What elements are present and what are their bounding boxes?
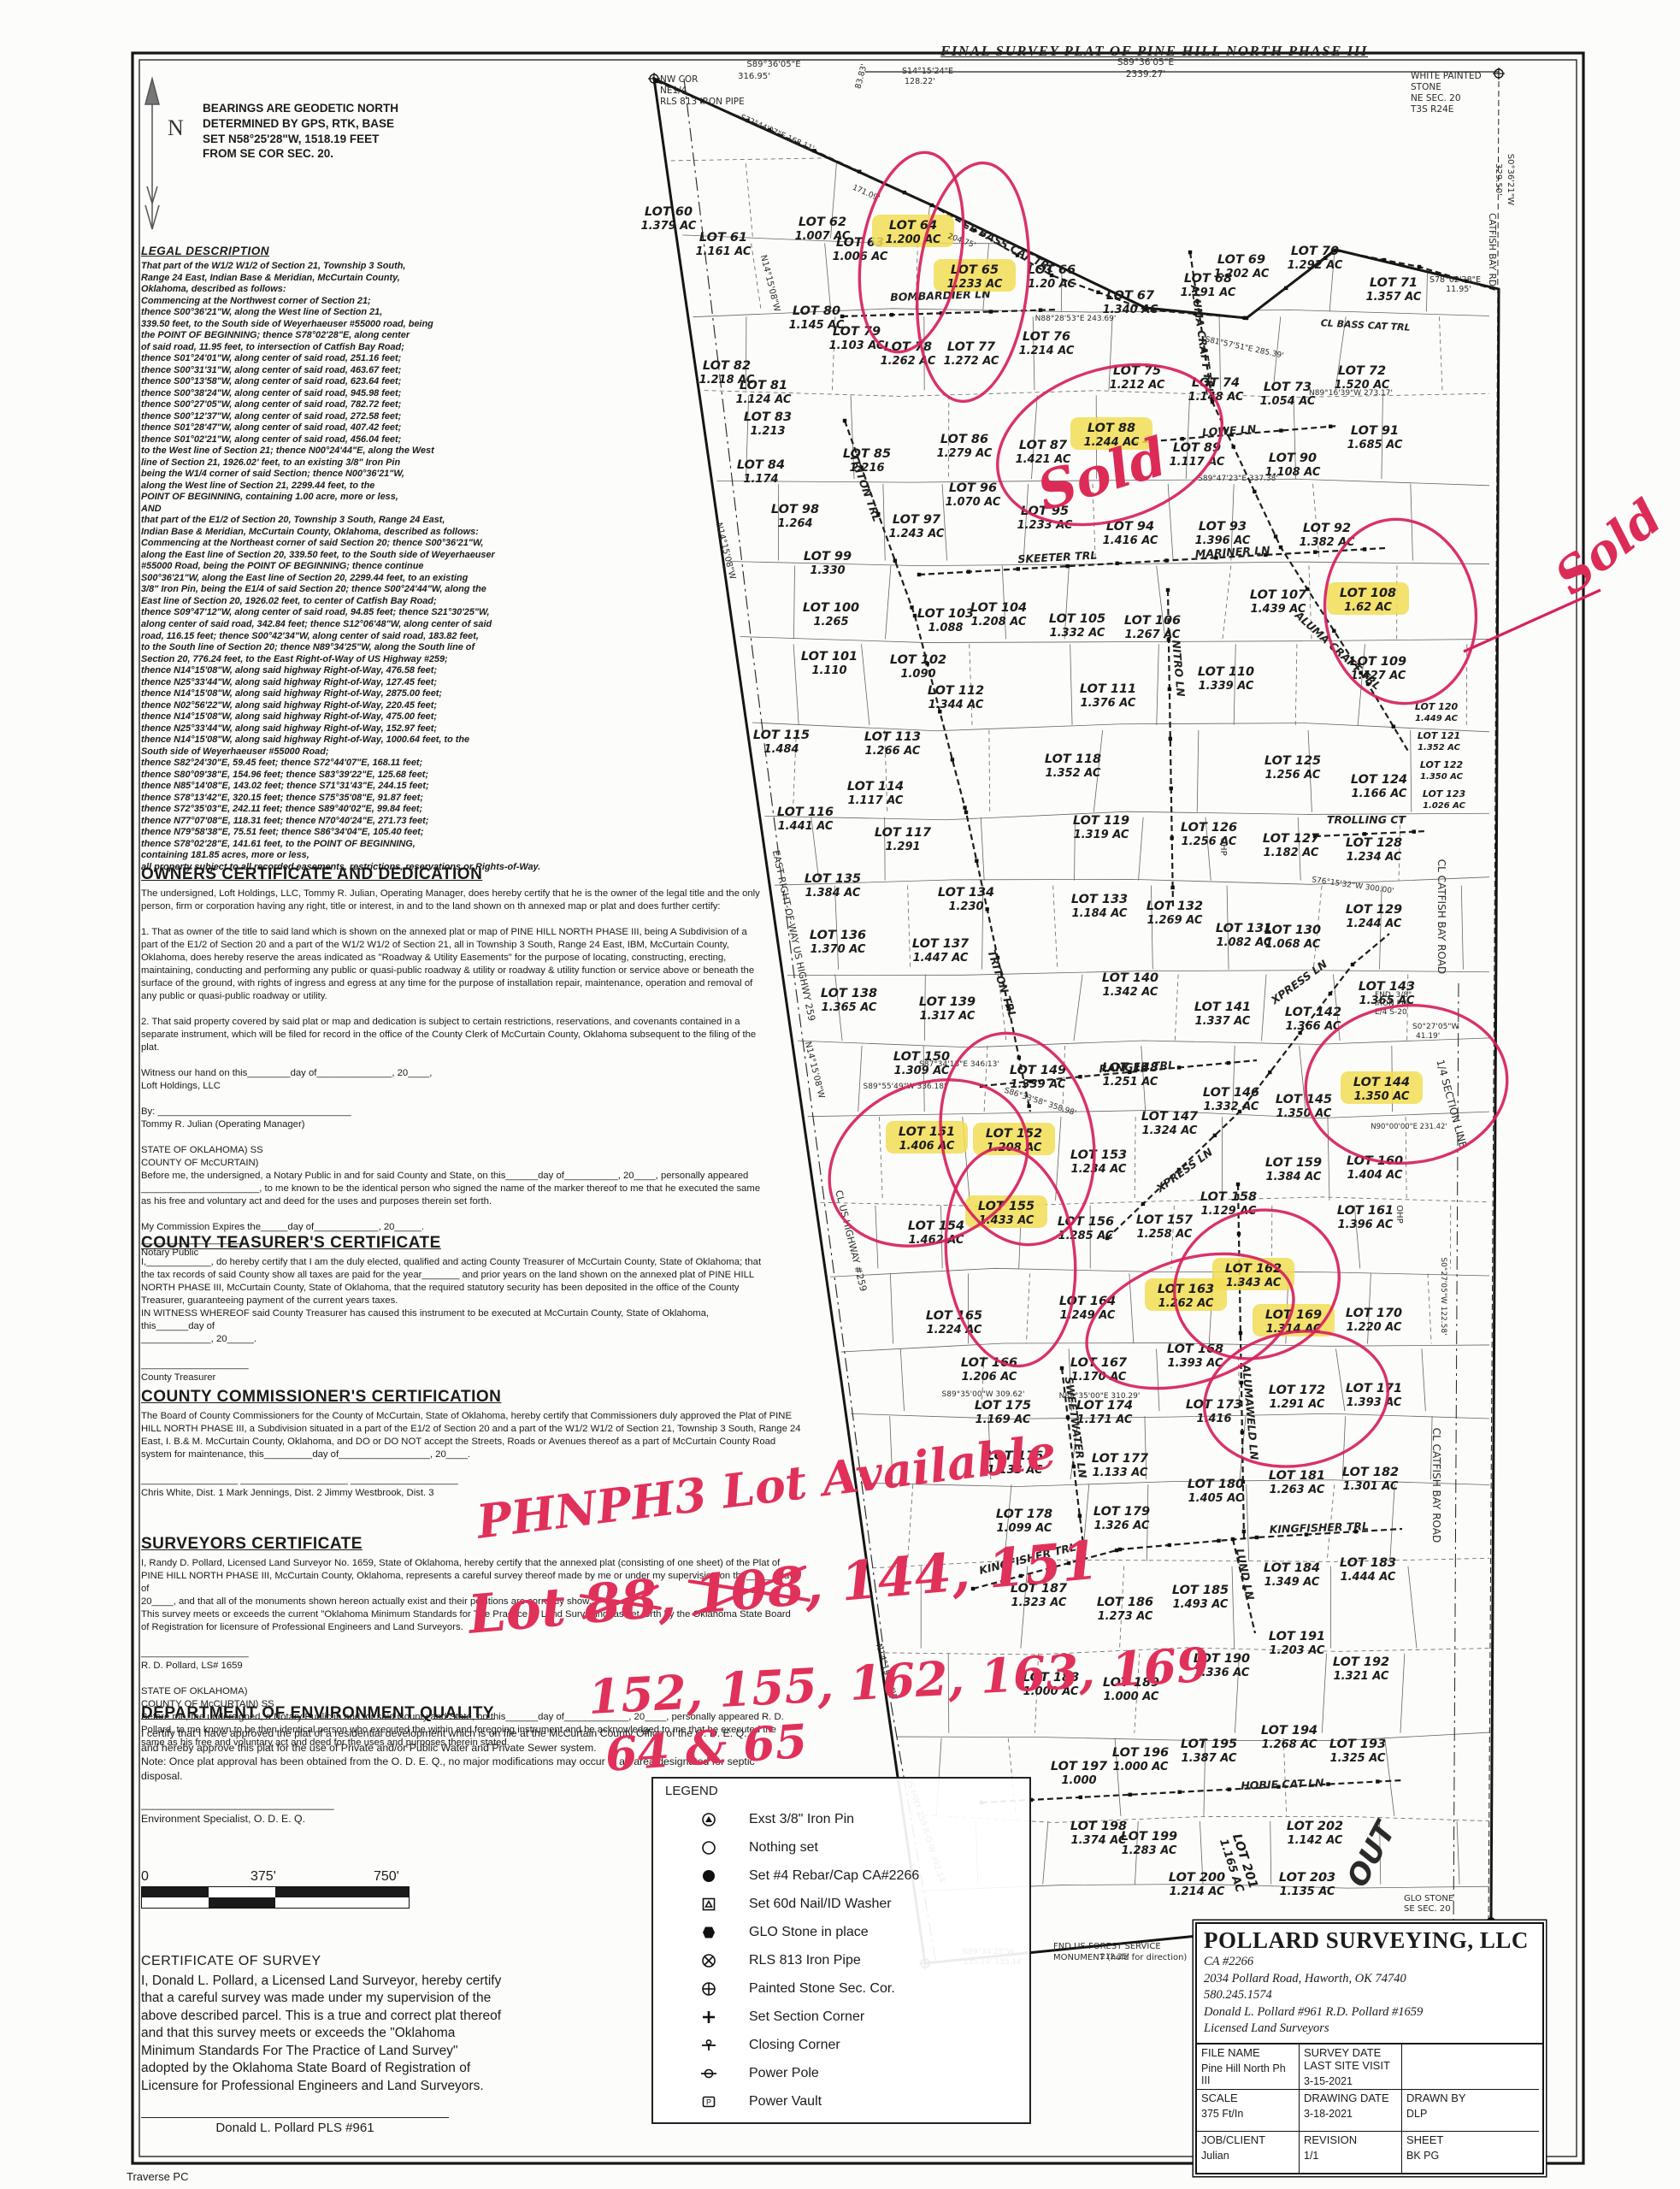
map-graphic: LOT 122 bbox=[1420, 759, 1464, 770]
map-annotation: CL CATFISH BAY ROAD bbox=[1435, 859, 1447, 974]
survey-date-value: 3-15-2021 bbox=[1304, 2075, 1397, 2087]
map-graphic bbox=[963, 805, 966, 809]
map-graphic bbox=[1363, 547, 1366, 551]
sheet-label: SHEET bbox=[1406, 2133, 1535, 2146]
map-graphic bbox=[843, 419, 846, 422]
legend: LEGEND Exst 3/8" Iron PinNothing setSet … bbox=[651, 1777, 1031, 2124]
map-graphic: LOT 129 bbox=[1346, 903, 1402, 917]
map-graphic bbox=[1070, 644, 1072, 725]
map-annotation: S81°57'51"E 285.39' bbox=[1205, 335, 1285, 360]
scale-label-0: 0 bbox=[141, 1869, 149, 1885]
map-graphic: LOT 100 bbox=[803, 601, 859, 615]
map-graphic: LOT 146 bbox=[1203, 1086, 1259, 1100]
sheet-value: BK PG bbox=[1406, 2150, 1535, 2162]
map-graphic: 1.405 AC bbox=[1188, 1492, 1244, 1505]
map-annotation: GLO STONE bbox=[1404, 1894, 1453, 1903]
map-graphic: LOT 152 bbox=[986, 1127, 1042, 1141]
map-graphic: LOT 124 bbox=[1351, 773, 1407, 787]
map-annotation: N14°15'08"W bbox=[803, 1041, 826, 1100]
map-graphic: 1.326 AC bbox=[1094, 1519, 1150, 1532]
map-graphic: 1.202 AC bbox=[1214, 268, 1270, 280]
map-graphic bbox=[1118, 1548, 1122, 1551]
map-graphic bbox=[793, 644, 799, 725]
lot-label-140: LOT 1401.342 AC bbox=[1102, 971, 1158, 999]
lot-label-174: LOT 1741.171 AC bbox=[1076, 1399, 1133, 1426]
road-label: LUND LN bbox=[1234, 1548, 1257, 1602]
lot-label-60: LOT 601.379 AC bbox=[641, 205, 697, 233]
map-graphic: LOT 166 bbox=[961, 1356, 1017, 1370]
map-graphic bbox=[1382, 258, 1386, 262]
lot-label-157: LOT 1571.258 AC bbox=[1136, 1213, 1194, 1241]
map-graphic: 1.396 AC bbox=[1195, 534, 1251, 547]
map-graphic: LOT 72 bbox=[1338, 364, 1386, 378]
lot-label-197: LOT 1971.000 bbox=[1051, 1760, 1108, 1787]
map-graphic bbox=[1177, 1791, 1181, 1794]
map-graphic: LOT 181 bbox=[1269, 1469, 1325, 1483]
lot-label-151: LOT 1511.406 AC bbox=[886, 1121, 968, 1154]
map-graphic bbox=[752, 244, 762, 312]
section-heading: LEGAL DESCRIPTION bbox=[141, 245, 654, 257]
lot-label-168: LOT 1681.393 AC bbox=[1167, 1342, 1223, 1370]
map-graphic: 1.000 AC bbox=[1113, 1761, 1169, 1773]
lot-label-70: LOT 701.292 AC bbox=[1288, 245, 1343, 272]
map-graphic: 1.256 AC bbox=[1265, 769, 1321, 782]
lot-label-132: LOT 1321.269 AC bbox=[1147, 900, 1203, 927]
map-graphic bbox=[975, 858, 978, 862]
lot-label-113: LOT 1131.266 AC bbox=[864, 730, 921, 758]
map-graphic bbox=[740, 637, 1489, 643]
map-graphic bbox=[1326, 1782, 1329, 1785]
map-graphic: LOT 193 bbox=[1329, 1738, 1386, 1751]
north-label: N bbox=[168, 115, 184, 140]
lot-label-115: LOT 1151.484 bbox=[753, 729, 810, 756]
power-pole-icon bbox=[698, 2066, 720, 2081]
map-graphic: 1.357 AC bbox=[1366, 291, 1422, 304]
lot-label-128: LOT 1281.234 AC bbox=[1346, 836, 1402, 864]
map-annotation: CL US HIGHWAY #259 bbox=[833, 1189, 869, 1293]
map-graphic bbox=[1231, 445, 1235, 448]
map-graphic: LOT 177 bbox=[1092, 1452, 1149, 1466]
map-graphic: LOT 119 bbox=[1073, 814, 1129, 828]
map-graphic bbox=[1177, 1065, 1181, 1069]
map-graphic: LOT 168 bbox=[1167, 1342, 1223, 1356]
map-graphic: LOT 101 bbox=[801, 650, 858, 664]
map-graphic: LOT 151 bbox=[899, 1125, 955, 1139]
map-graphic: 1.218 AC bbox=[699, 374, 755, 386]
lot-label-118: LOT 1181.352 AC bbox=[1045, 752, 1101, 780]
lot-label-175: LOT 1751.169 AC bbox=[975, 1399, 1031, 1426]
map-graphic bbox=[1017, 567, 1020, 570]
map-graphic: 1.387 AC bbox=[1182, 1752, 1237, 1765]
map-graphic: 1.220 AC bbox=[1347, 1321, 1402, 1334]
map-graphic bbox=[1237, 1232, 1241, 1236]
map-graphic: 1.384 AC bbox=[805, 887, 861, 900]
section-heading: SURVEYORS CERTIFICATE bbox=[141, 1535, 799, 1554]
map-graphic bbox=[1284, 286, 1288, 290]
lot-label-178: LOT 1781.099 AC bbox=[996, 1508, 1052, 1535]
legend-item-label: Closing Corner bbox=[749, 2038, 840, 2053]
map-graphic bbox=[1115, 562, 1118, 565]
lot-label-194: LOT 1941.268 AC bbox=[1261, 1724, 1317, 1751]
lot-label-122: LOT 1221.350 AC bbox=[1420, 759, 1464, 782]
legend-item: Painted Stone Sec. Cor. bbox=[653, 1974, 1029, 2003]
map-graphic: LOT 196 bbox=[1112, 1746, 1169, 1760]
lot-label-170: LOT 1701.220 AC bbox=[1346, 1307, 1402, 1334]
map-graphic: LOT 191 bbox=[1269, 1630, 1325, 1643]
lot-label-161: LOT 1611.396 AC bbox=[1337, 1204, 1394, 1231]
map-graphic: LOT 157 bbox=[1136, 1213, 1194, 1227]
map-graphic bbox=[1129, 1793, 1132, 1797]
map-graphic bbox=[1078, 1075, 1082, 1078]
road-label: XPRESS LN bbox=[1268, 957, 1330, 1006]
lot-label-138: LOT 1381.365 AC bbox=[821, 987, 877, 1014]
company-tagline: Licensed Land Surveyors bbox=[1204, 2021, 1536, 2038]
map-graphic: LOT 127 bbox=[1263, 832, 1320, 846]
lot-label-184: LOT 1841.349 AC bbox=[1264, 1561, 1320, 1589]
map-graphic: 1.350 AC bbox=[1276, 1107, 1332, 1120]
map-graphic bbox=[910, 605, 913, 609]
map-graphic bbox=[1079, 1796, 1082, 1799]
map-graphic: 1.133 AC bbox=[1093, 1466, 1148, 1479]
map-graphic: LOT 156 bbox=[1058, 1215, 1114, 1229]
painted-stone-icon bbox=[698, 1981, 720, 1997]
map-graphic: LOT 80 bbox=[793, 304, 840, 318]
map-graphic: LOT 161 bbox=[1337, 1204, 1394, 1218]
map-graphic: LOT 198 bbox=[1070, 1820, 1127, 1833]
lot-label-141: LOT 1411.337 AC bbox=[1194, 1000, 1251, 1028]
map-graphic: LOT 93 bbox=[1199, 520, 1247, 534]
map-graphic: 1.365 AC bbox=[822, 1001, 877, 1014]
legend-item: Set #4 Rebar/Cap CA#2266 bbox=[653, 1862, 1029, 1890]
lot-label-86: LOT 861.279 AC bbox=[937, 433, 993, 460]
map-graphic: LOT 114 bbox=[847, 780, 904, 794]
lot-label-124: LOT 1241.166 AC bbox=[1351, 773, 1407, 800]
map-graphic bbox=[1241, 1431, 1244, 1434]
map-graphic: 1.337 AC bbox=[1195, 1015, 1251, 1028]
lot-label-183: LOT 1831.444 AC bbox=[1340, 1556, 1396, 1584]
lot-label-116: LOT 1161.441 AC bbox=[777, 805, 834, 833]
map-annotation: 11.95' bbox=[1446, 285, 1471, 294]
lot-label-149: LOT 1491.339 AC bbox=[1010, 1064, 1066, 1091]
map-graphic bbox=[1295, 644, 1297, 725]
map-graphic: LOT 86 bbox=[940, 433, 988, 446]
lot-label-180: LOT 1801.405 AC bbox=[1188, 1478, 1244, 1505]
map-graphic: LOT 97 bbox=[893, 513, 941, 527]
lot-label-110: LOT 1101.339 AC bbox=[1198, 665, 1254, 693]
map-graphic: LOT 142 bbox=[1285, 1006, 1341, 1019]
map-graphic: LOT 110 bbox=[1198, 665, 1254, 679]
map-graphic: LOT 107 bbox=[1250, 588, 1307, 602]
map-annotation: OHP bbox=[1218, 837, 1228, 855]
map-graphic: 1.214 AC bbox=[1170, 1885, 1225, 1898]
map-graphic bbox=[875, 1206, 878, 1269]
lot-label-192: LOT 1921.321 AC bbox=[1333, 1655, 1389, 1683]
map-graphic: 1.339 AC bbox=[1199, 680, 1254, 693]
map-graphic: 1.142 AC bbox=[1288, 1834, 1343, 1847]
map-graphic bbox=[1400, 1654, 1405, 1733]
lot-label-126: LOT 1261.256 AC bbox=[1181, 821, 1237, 848]
map-graphic: 1.370 AC bbox=[811, 943, 866, 956]
map-graphic: LOT 116 bbox=[777, 805, 834, 819]
map-graphic: 1.166 AC bbox=[1352, 788, 1407, 800]
bearings-note: BEARINGS ARE GEODETIC NORTH DETERMINED B… bbox=[203, 101, 498, 162]
map-graphic: LOT 194 bbox=[1261, 1724, 1317, 1738]
scale-bar-graphic bbox=[141, 1886, 410, 1909]
map-graphic: LOT 138 bbox=[821, 987, 877, 1000]
map-graphic: LOT 87 bbox=[1019, 439, 1068, 452]
legend-item-label: GLO Stone in place bbox=[749, 1925, 869, 1940]
map-graphic bbox=[830, 1268, 1489, 1277]
map-annotation: 128.22' bbox=[905, 77, 935, 86]
certificate-of-survey: CERTIFICATE OF SURVEY I, Donald L. Polla… bbox=[141, 1954, 509, 2135]
map-graphic: LOT 130 bbox=[1264, 923, 1321, 937]
map-graphic bbox=[1270, 1821, 1271, 1885]
lot-label-172: LOT 1721.291 AC bbox=[1269, 1384, 1325, 1411]
map-graphic bbox=[1197, 730, 1199, 812]
map-graphic bbox=[1232, 1567, 1235, 1649]
map-graphic bbox=[825, 244, 831, 312]
map-graphic: 1.321 AC bbox=[1334, 1670, 1389, 1683]
map-graphic: LOT 132 bbox=[1147, 900, 1203, 913]
lot-label-198: LOT 1981.374 AC bbox=[1070, 1820, 1127, 1847]
map-graphic bbox=[1279, 428, 1282, 432]
lot-label-136: LOT 1361.370 AC bbox=[810, 929, 866, 956]
map-graphic bbox=[858, 1046, 862, 1112]
road-label: XPRESS LN bbox=[1153, 1145, 1216, 1195]
lot-label-84: LOT 841.174 bbox=[737, 458, 785, 486]
map-graphic: LOT 109 bbox=[1350, 655, 1406, 669]
map-graphic: LOT 137 bbox=[912, 937, 970, 951]
road-hobie-cat-ln bbox=[981, 1780, 1402, 1803]
map-graphic bbox=[890, 1273, 893, 1343]
map-graphic: 1.117 AC bbox=[1170, 456, 1225, 469]
map-graphic: 1.427 AC bbox=[1351, 670, 1406, 682]
map-graphic: 1.267 AC bbox=[1125, 628, 1181, 641]
map-graphic: 1.343 AC bbox=[1226, 1277, 1282, 1289]
map-graphic bbox=[967, 570, 970, 574]
map-annotation: SE SEC. 20 bbox=[1404, 1904, 1451, 1914]
map-graphic bbox=[1026, 1273, 1029, 1343]
map-graphic bbox=[985, 907, 988, 911]
section-corner-icon bbox=[698, 2009, 720, 2025]
map-graphic: 1.234 AC bbox=[1347, 851, 1402, 864]
lot-label-158: LOT 1581.129 AC bbox=[1200, 1190, 1257, 1218]
map-graphic: 1.493 AC bbox=[1173, 1598, 1229, 1611]
lot-label-77: LOT 771.272 AC bbox=[944, 340, 999, 368]
lot-label-64: LOT 641.200 AC bbox=[872, 215, 954, 247]
map-graphic: 1.449 AC bbox=[1415, 714, 1459, 723]
legend-item: Closing Corner bbox=[653, 2031, 1029, 2059]
map-graphic bbox=[1385, 1738, 1394, 1816]
map-graphic bbox=[145, 79, 159, 104]
map-graphic: 1.212 AC bbox=[1110, 379, 1165, 392]
map-annotation: 83.83' bbox=[853, 63, 869, 91]
handwritten-text: 108 bbox=[691, 1555, 806, 1626]
map-graphic bbox=[1078, 1514, 1082, 1518]
map-graphic bbox=[1017, 1056, 1021, 1059]
road-label: HOBIE CAT LN bbox=[1241, 1776, 1324, 1791]
map-graphic bbox=[1322, 1654, 1326, 1733]
map-graphic bbox=[1242, 1530, 1246, 1533]
map-graphic: LOT 62 bbox=[799, 215, 846, 229]
map-graphic: LOT 184 bbox=[1264, 1561, 1320, 1575]
map-graphic bbox=[1096, 291, 1099, 294]
map-annotation: OHP bbox=[1394, 1205, 1404, 1223]
map-graphic: 1.124 AC bbox=[736, 393, 792, 406]
map-graphic: LOT 128 bbox=[1346, 836, 1402, 850]
map-annotation: S89°47'23"E 337.38' bbox=[1198, 475, 1278, 483]
lot-label-101: LOT 1011.110 bbox=[801, 650, 858, 677]
map-graphic: LOT 71 bbox=[1370, 276, 1418, 290]
map-annotation: S89°35'00"W 309.62' bbox=[942, 1390, 1025, 1399]
map-graphic: LOT 111 bbox=[1080, 682, 1136, 696]
map-graphic: 1.332 AC bbox=[1204, 1100, 1259, 1113]
lot-label-166: LOT 1661.206 AC bbox=[961, 1356, 1017, 1384]
scale-bar: 0 375' 750' bbox=[141, 1869, 423, 1909]
map-graphic: LOT 60 bbox=[645, 205, 693, 219]
map-graphic: LOT 104 bbox=[970, 601, 1027, 615]
map-annotation: S14°15'24"E bbox=[902, 67, 953, 76]
road-label: TROLLING CT bbox=[1327, 813, 1407, 826]
map-graphic bbox=[1066, 564, 1070, 568]
map-graphic: 1.230 bbox=[948, 900, 983, 913]
section-heading: COUNTY TEASURER'S CERTIFICATE bbox=[141, 1234, 765, 1253]
map-graphic: 1.323 AC bbox=[1011, 1596, 1067, 1609]
map-graphic: LOT 66 bbox=[1028, 263, 1076, 277]
map-graphic bbox=[1227, 1061, 1230, 1065]
road-bombardier-ln bbox=[842, 310, 1058, 316]
road-label: SKEETER TRL bbox=[1017, 549, 1098, 566]
lot-label-186: LOT 1861.273 AC bbox=[1097, 1596, 1153, 1623]
lot-label-75: LOT 751.212 AC bbox=[1110, 364, 1165, 392]
map-graphic: 1.070 AC bbox=[946, 496, 1001, 509]
lot-label-65: LOT 651.233 AC bbox=[934, 259, 1016, 292]
lot-label-179: LOT 1791.326 AC bbox=[1093, 1505, 1150, 1532]
map-graphic: 1.685 AC bbox=[1347, 439, 1403, 451]
map-graphic bbox=[1392, 725, 1395, 729]
legend-item: RLS 813 Iron Pipe bbox=[653, 1946, 1029, 1974]
survey-plat-page: N CL BASS CAT TRLCL BASS CAT TRLBOMBARDI… bbox=[0, 0, 1680, 2189]
map-graphic bbox=[1428, 1273, 1431, 1343]
map-graphic: 1.325 AC bbox=[1330, 1752, 1386, 1765]
map-annotation: T3S R24E bbox=[1410, 104, 1453, 115]
map-graphic bbox=[1239, 1331, 1242, 1335]
map-graphic bbox=[900, 1348, 904, 1411]
map-graphic: LOT 145 bbox=[1276, 1093, 1332, 1106]
map-graphic: LOT 82 bbox=[703, 359, 751, 373]
lot-label-83: LOT 831.213 bbox=[744, 410, 792, 438]
map-graphic: LOT 112 bbox=[928, 684, 984, 698]
map-graphic bbox=[1274, 534, 1277, 538]
map-graphic: LOT 126 bbox=[1181, 821, 1237, 835]
road-label: NITRO LN bbox=[1170, 640, 1188, 698]
map-graphic bbox=[1027, 1104, 1030, 1107]
treasurer-certificate: COUNTY TEASURER'S CERTIFICATE I,________… bbox=[141, 1234, 765, 1384]
legend-item: GLO Stone in place bbox=[653, 1918, 1029, 1946]
lot-label-148: LOT 1481.251 AC bbox=[1102, 1061, 1158, 1089]
company-name: POLLARD SURVEYING, LLC bbox=[1204, 1927, 1536, 1954]
lot-label-177: LOT 1771.133 AC bbox=[1092, 1452, 1149, 1479]
map-graphic: 1.439 AC bbox=[1251, 603, 1306, 616]
map-graphic bbox=[1175, 975, 1178, 1041]
map-graphic: LOT 179 bbox=[1093, 1505, 1150, 1519]
map-graphic: LOT 136 bbox=[810, 929, 866, 942]
map-graphic: LOT 99 bbox=[804, 550, 852, 563]
drawing-date-value: 3-18-2021 bbox=[1304, 2108, 1397, 2120]
map-graphic: 1.396 AC bbox=[1338, 1218, 1394, 1231]
map-graphic bbox=[913, 614, 917, 617]
map-graphic: 1.243 AC bbox=[889, 528, 945, 540]
map-graphic: LOT 180 bbox=[1188, 1478, 1244, 1491]
map-graphic bbox=[1170, 836, 1174, 840]
map-graphic: 1.214 AC bbox=[1019, 345, 1075, 357]
map-graphic: 1.291 bbox=[885, 841, 920, 853]
scale-value: 375 Ft/In bbox=[1201, 2108, 1294, 2120]
map-graphic: 1.258 AC bbox=[1137, 1228, 1193, 1241]
map-graphic: 1.444 AC bbox=[1341, 1571, 1396, 1584]
map-graphic: LOT 148 bbox=[1102, 1061, 1158, 1075]
map-graphic bbox=[862, 644, 869, 725]
map-annotation: S87°34'13"E 346.13' bbox=[919, 1060, 999, 1069]
map-graphic: LOT 178 bbox=[996, 1508, 1052, 1521]
map-annotation: N89°16'39"W 273.17' bbox=[1309, 389, 1393, 398]
map-graphic: LOT 125 bbox=[1264, 754, 1321, 768]
lot-label-105: LOT 1051.332 AC bbox=[1049, 612, 1105, 640]
lot-label-94: LOT 941.416 AC bbox=[1103, 520, 1158, 547]
map-graphic: 1.026 AC bbox=[1423, 801, 1466, 811]
map-graphic bbox=[890, 313, 893, 316]
lot-label-127: LOT 1271.182 AC bbox=[1263, 832, 1320, 859]
map-graphic: LOT 131 bbox=[1216, 922, 1272, 935]
map-graphic: 1.266 AC bbox=[865, 745, 921, 758]
scale-label-750: 750' bbox=[374, 1869, 399, 1885]
map-annotation: NW COR bbox=[660, 74, 698, 85]
map-graphic: LOT 133 bbox=[1071, 893, 1128, 906]
map-graphic: 1.182 AC bbox=[1264, 847, 1319, 859]
map-graphic: 1.135 AC bbox=[1280, 1885, 1335, 1898]
lot-label-171: LOT 1711.393 AC bbox=[1346, 1382, 1402, 1409]
map-graphic: 1.117 AC bbox=[848, 794, 904, 807]
lot-label-121: LOT 1211.352 AC bbox=[1418, 730, 1461, 752]
closing-corner-icon bbox=[698, 2038, 720, 2053]
map-graphic: LOT 67 bbox=[1106, 289, 1155, 303]
map-graphic: 1.332 AC bbox=[1050, 627, 1105, 640]
lot-label-91: LOT 911.685 AC bbox=[1347, 424, 1403, 451]
map-graphic: 1.393 AC bbox=[1347, 1396, 1402, 1409]
map-graphic: 1.344 AC bbox=[928, 699, 984, 711]
map-annotation: S0°27'05"W 122.58' bbox=[1439, 1257, 1447, 1335]
map-graphic bbox=[798, 1038, 1489, 1047]
map-graphic: LOT 83 bbox=[744, 410, 792, 424]
map-graphic bbox=[1039, 308, 1042, 311]
map-annotation: 329.50' bbox=[1494, 163, 1503, 196]
lot-label-93: LOT 931.396 AC bbox=[1195, 520, 1251, 547]
map-graphic: LOT 149 bbox=[1010, 1064, 1066, 1077]
map-graphic bbox=[1227, 1787, 1230, 1791]
lot-label-107: LOT 1071.439 AC bbox=[1250, 588, 1307, 616]
map-annotation: S86°33'58" 358.98' bbox=[1003, 1087, 1077, 1118]
map-graphic: LOT 197 bbox=[1051, 1760, 1108, 1773]
map-graphic: LOT 77 bbox=[947, 340, 996, 354]
legend-item-label: Power Pole bbox=[749, 2066, 819, 2081]
map-graphic bbox=[1043, 1821, 1048, 1885]
map-graphic: LOT 121 bbox=[1418, 730, 1460, 741]
legend-item-label: Set #4 Rebar/Cap CA#2266 bbox=[749, 1868, 919, 1884]
map-graphic bbox=[1335, 1348, 1344, 1411]
map-graphic bbox=[1313, 550, 1317, 553]
map-graphic: 1.244 AC bbox=[1347, 917, 1402, 930]
map-graphic: LOT 117 bbox=[875, 826, 932, 840]
